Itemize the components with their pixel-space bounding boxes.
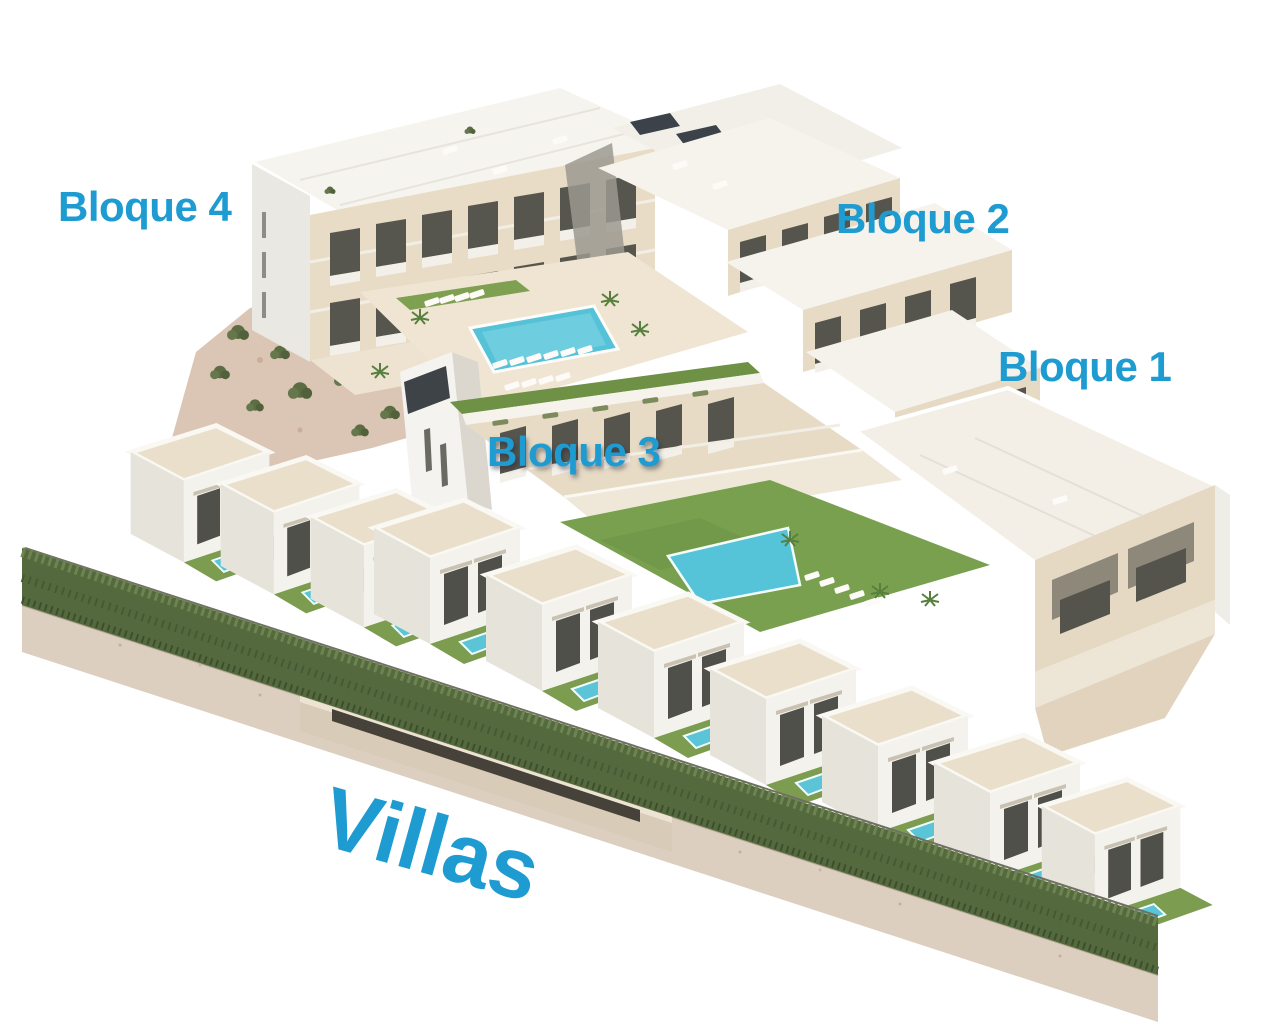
render-canvas: Bloque 4 Bloque 2 Bloque 1 Bloque 3 Vill…	[0, 0, 1280, 1024]
label-bloque-3: Bloque 3	[487, 431, 660, 473]
label-bloque-2: Bloque 2	[836, 198, 1009, 240]
label-bloque-1: Bloque 1	[998, 346, 1171, 388]
elevator-tower	[400, 352, 492, 522]
label-bloque-4: Bloque 4	[58, 186, 231, 228]
site-render-3d	[0, 0, 1280, 1024]
